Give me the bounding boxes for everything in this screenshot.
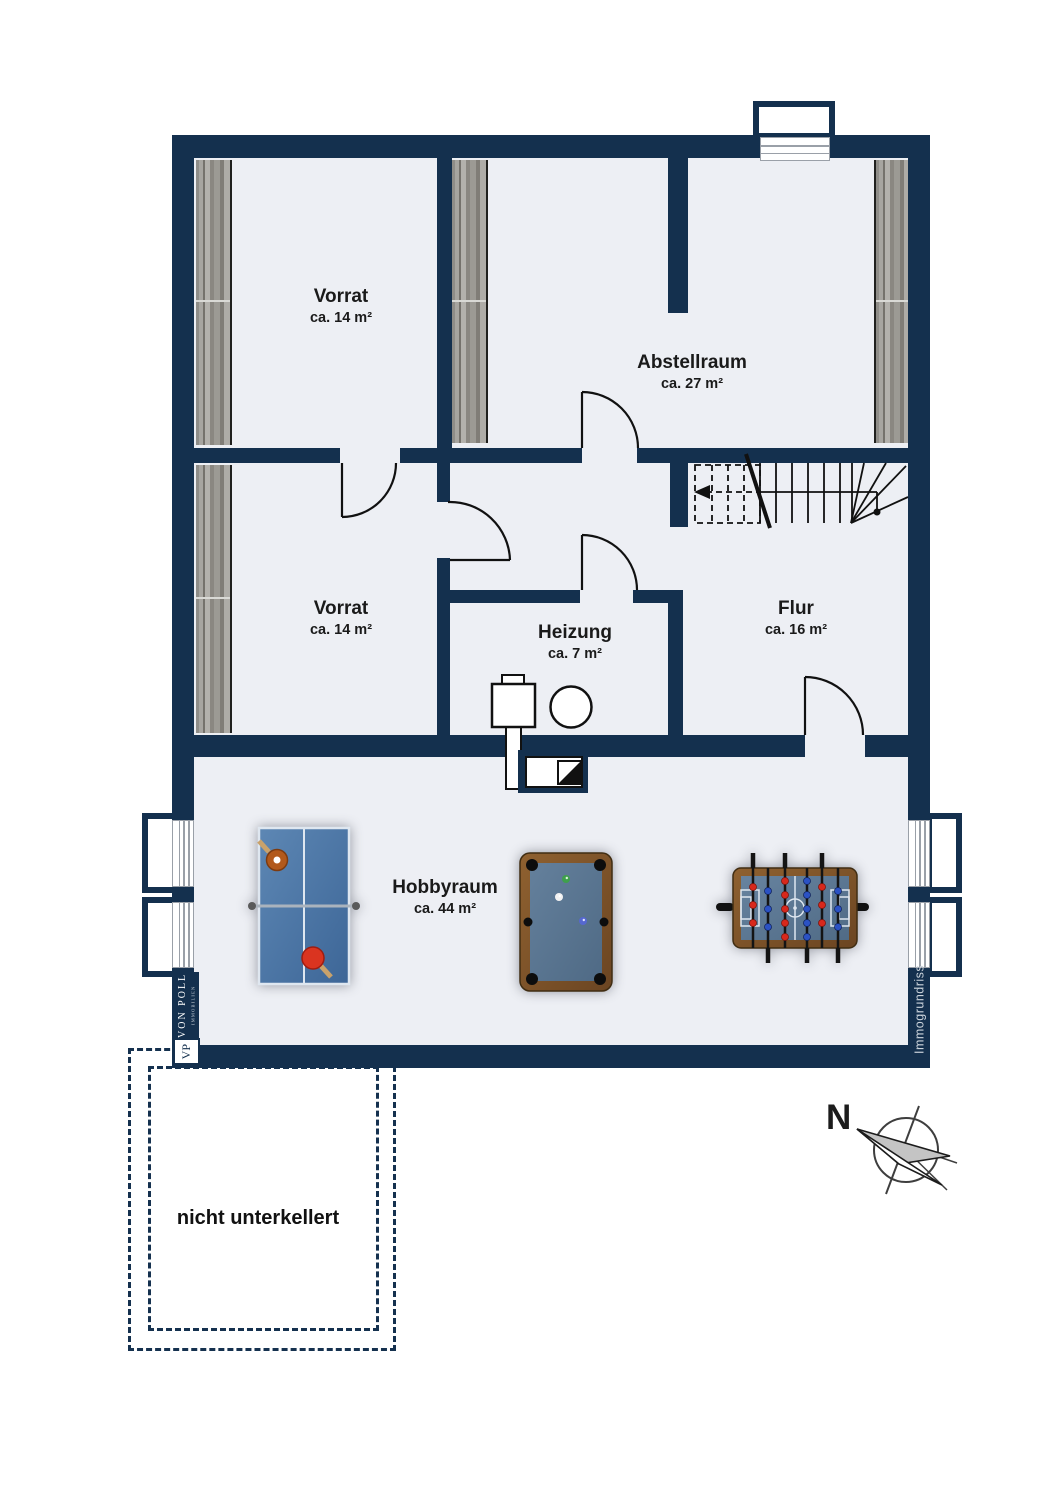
von-poll-logo: VON POLL IMMOBILIEN: [174, 972, 199, 1038]
wall-segment: [172, 1045, 930, 1068]
room-area: ca. 14 m²: [310, 310, 372, 327]
light-well: [753, 101, 835, 139]
brand-monogram: VP: [179, 1044, 194, 1059]
window: [172, 820, 194, 887]
room-area: ca. 27 m²: [637, 376, 747, 393]
brand-division: IMMOBILIEN: [189, 972, 197, 1038]
room-name: Hobbyraum: [392, 877, 498, 899]
von-poll-monogram: VP: [173, 1038, 200, 1065]
wall-segment: [668, 590, 683, 735]
room-area: ca. 14 m²: [310, 622, 372, 639]
wall-segment: [633, 590, 670, 603]
room-name: Heizung: [538, 622, 612, 644]
nicht-unterkellert-outline-inner: [148, 1066, 379, 1331]
room-name: Vorrat: [310, 286, 372, 308]
window: [908, 902, 930, 968]
room-label-flur: Flur ca. 16 m²: [765, 598, 827, 639]
shelf: [196, 160, 232, 445]
window: [172, 902, 194, 968]
room-label-hobbyraum: Hobbyraum ca. 44 m²: [392, 877, 498, 918]
shelf: [874, 160, 910, 443]
wall-segment: [668, 158, 688, 313]
light-well: [926, 813, 962, 893]
room-area: ca. 44 m²: [392, 901, 498, 918]
wall-segment: [437, 158, 452, 448]
wall-segment: [908, 135, 930, 820]
floor-plan: Vorrat ca. 14 m² Abstellraum ca. 27 m² V…: [0, 0, 1060, 1500]
light-well: [926, 897, 962, 977]
table-tennis-table: [247, 824, 361, 988]
shelf: [196, 465, 232, 733]
room-label-heizung: Heizung ca. 7 m²: [538, 622, 612, 663]
room-label-vorrat-top: Vorrat ca. 14 m²: [310, 286, 372, 327]
room-name: Flur: [765, 598, 827, 620]
wall-segment: [194, 448, 340, 463]
compass-rose-icon: [857, 1106, 957, 1194]
wall-segment: [865, 735, 908, 757]
room-name: Abstellraum: [637, 352, 747, 374]
wall-segment: [670, 463, 688, 527]
nicht-unterkellert-label: nicht unterkellert: [177, 1207, 339, 1230]
shelf: [452, 160, 488, 443]
wall-segment: [194, 735, 805, 757]
foosball-table: [711, 845, 879, 971]
wall-segment: [437, 558, 450, 735]
brand-name: VON POLL: [176, 972, 189, 1038]
room-label-abstellraum: Abstellraum ca. 27 m²: [637, 352, 747, 393]
wall-segment: [400, 448, 582, 463]
wall-segment: [637, 448, 908, 463]
window: [760, 137, 830, 161]
window: [908, 820, 930, 887]
immogrundriss-watermark: Immogrundriss: [909, 966, 930, 1052]
compass-north-label: N: [826, 1098, 851, 1138]
room-label-vorrat-mid: Vorrat ca. 14 m²: [310, 598, 372, 639]
room-area: ca. 7 m²: [538, 646, 612, 663]
wall-segment: [908, 887, 930, 902]
wall-segment: [172, 887, 194, 902]
billiard-table: [518, 851, 614, 993]
room-name: Vorrat: [310, 598, 372, 620]
room-area: ca. 16 m²: [765, 622, 827, 639]
wall-segment: [448, 590, 580, 603]
wall-segment: [172, 135, 194, 820]
wall-segment: [437, 463, 450, 502]
